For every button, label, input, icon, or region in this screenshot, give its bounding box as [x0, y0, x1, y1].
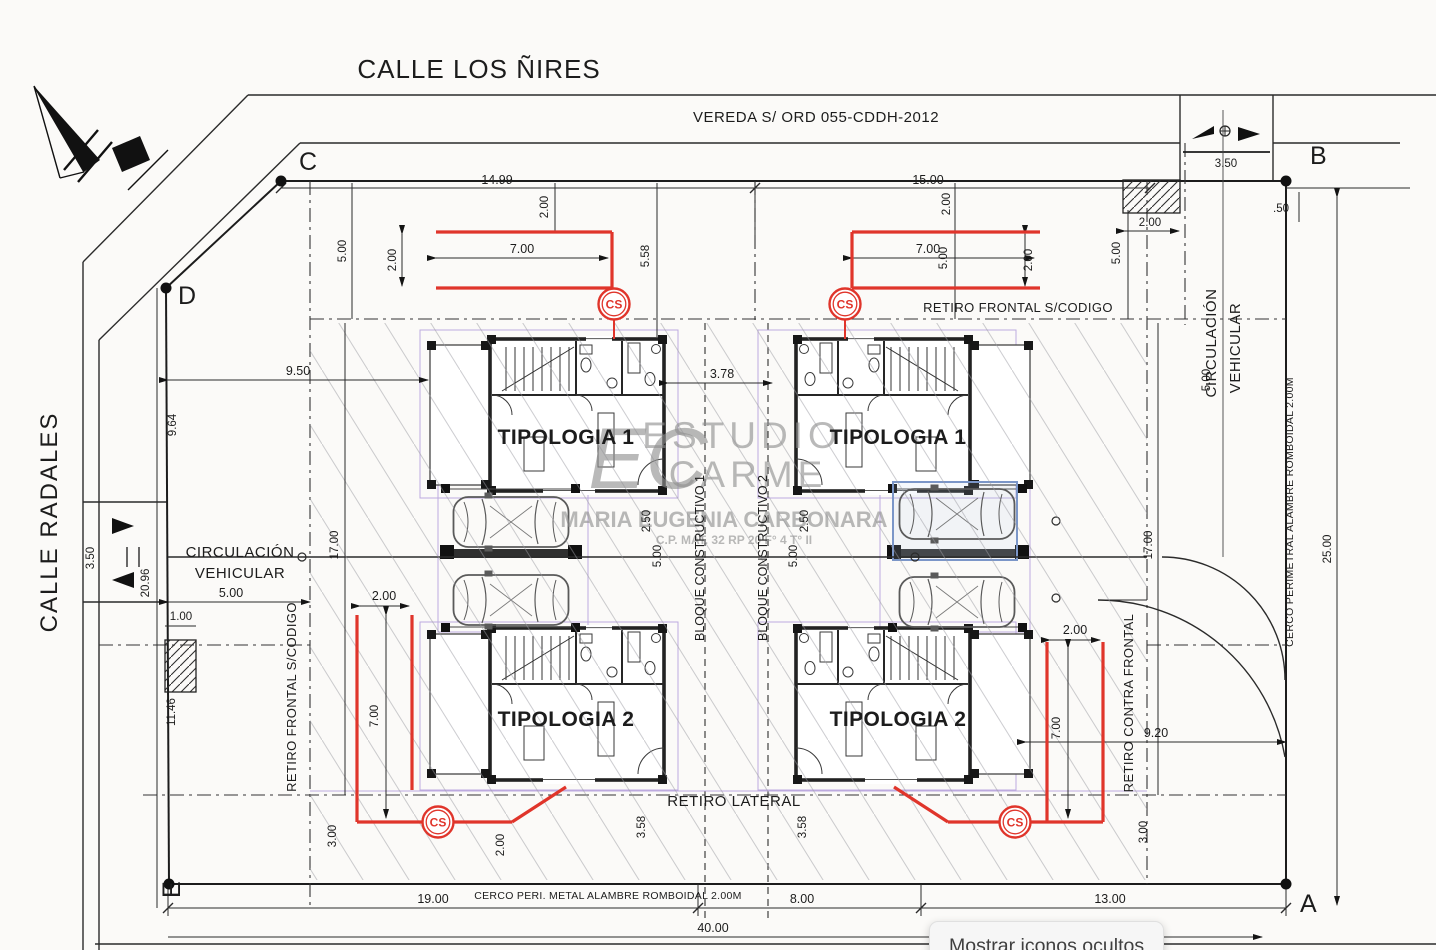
dim-9-64: 9.64 — [167, 413, 179, 436]
dim-deck-br-length: 7.00 — [1051, 717, 1063, 739]
dim-circ-5-right: 5.00 — [1201, 369, 1213, 391]
dim-front-5-58: 5.58 — [640, 245, 652, 267]
dim-front-gap-right: 2.00 — [941, 193, 953, 215]
watermark-architect-name: MARIA EUGENIA CARBONARA — [560, 507, 887, 532]
dim-deck-tr-width: 2.00 — [1023, 249, 1035, 271]
dim-drive-width: 5.00 — [219, 586, 243, 600]
dim-front-5-right: 5.00 — [938, 247, 950, 269]
site-plan-drawing: CS CS CS CS EC ESTUDIO CARME MARIA EUGEN… — [0, 0, 1436, 950]
taskbar-tooltip-label: Mostrar iconos ocultos — [949, 935, 1144, 950]
dim-carport-500-left: 5.00 — [652, 545, 664, 567]
corner-d-label: D — [178, 282, 196, 310]
street-name-left: CALLE RADALES — [36, 412, 63, 633]
dim-deck-br-width: 2.00 — [1063, 623, 1087, 637]
bloque-1-label: BLOQUE CONSTRUCTIVO 1 — [693, 475, 707, 641]
tipologia1-right-label: TIPOLOGIA 1 — [830, 426, 967, 449]
corner-e-label: E — [158, 881, 186, 898]
dim-lot-right-width: 15.00 — [912, 173, 943, 187]
dim-9-20: 9.20 — [1144, 726, 1168, 740]
dim-carport-500-right: 5.00 — [788, 545, 800, 567]
corner-b-label: B — [1310, 142, 1327, 170]
cs-marker-bottom-left: CS — [423, 807, 454, 838]
retiro-frontal-right-note: RETIRO FRONTAL S/CODIGO — [923, 300, 1113, 315]
cs-label: CS — [1007, 816, 1024, 830]
dim-11-46: 11.46 — [166, 698, 178, 726]
dim-front-5-left: 5.00 — [337, 240, 349, 262]
retiro-lateral-note: RETIRO LATERAL — [667, 793, 800, 810]
dim-hatch-side: 5.00 — [1111, 242, 1123, 264]
tipologia2-left-label: TIPOLOGIA 2 — [498, 708, 635, 731]
dim-bottom-seg3: 13.00 — [1094, 892, 1125, 906]
dim-25-00: 25.00 — [1322, 535, 1334, 564]
cs-label: CS — [606, 298, 623, 312]
vereda-note: VEREDA S/ ORD 055-CDDH-2012 — [693, 109, 939, 126]
tipologia1-left-label: TIPOLOGIA 1 — [498, 426, 635, 449]
access-hatch-left — [165, 640, 196, 692]
dim-deck-tl-width: 2.00 — [387, 249, 399, 271]
dim-deck-tl-length: 7.00 — [510, 242, 534, 256]
dim-17-left: 17.00 — [329, 531, 341, 560]
dim-2-00-rear: 2.00 — [495, 834, 507, 856]
circulacion-right-line2: VEHICULAR — [1227, 303, 1244, 393]
dim-vereda-access: 3.50 — [1215, 158, 1237, 170]
dim-hatch-width: 2.00 — [1139, 217, 1161, 229]
dim-3-00-left: 3.00 — [327, 825, 339, 847]
dim-radales-access: 3.50 — [85, 547, 97, 569]
cs-marker-top-left: CS — [599, 289, 630, 320]
access-hatch-top-right — [1123, 180, 1180, 213]
site-plan-page: CS CS CS CS EC ESTUDIO CARME MARIA EUGEN… — [0, 0, 1436, 950]
dim-bottom-seg1: 19.00 — [417, 892, 448, 906]
corner-a-label: A — [1300, 890, 1317, 918]
dim-front-gap-left: 2.00 — [539, 196, 551, 218]
dim-lot-left-width: 14.99 — [481, 173, 512, 187]
circulacion-left-line2: VEHICULAR — [195, 565, 285, 582]
dim-bottom-seg2: 8.00 — [790, 892, 814, 906]
retiro-contra-frontal-note: RETIRO CONTRA FRONTAL — [1121, 614, 1136, 793]
dim-bottom-total: 40.00 — [697, 921, 728, 935]
taskbar-tooltip: Mostrar iconos ocultos — [929, 921, 1164, 950]
cerco-right-note: CERCO PERIMETRAL ALAMBRE ROMBOIDAL 2.00M — [1284, 377, 1296, 647]
dim-3-58-left: 3.58 — [636, 816, 648, 838]
corner-c-label: C — [299, 148, 317, 176]
cs-marker-top-right: CS — [830, 289, 861, 320]
dim-3-58-right: 3.58 — [797, 816, 809, 838]
dim-deck-bl-width: 2.00 — [372, 589, 396, 603]
cs-label: CS — [837, 298, 854, 312]
bloque-2-label: BLOQUE CONSTRUCTIVO 2 — [756, 475, 770, 641]
dim-17-right: 17.00 — [1143, 531, 1155, 560]
dim-1-00: 1.00 — [170, 611, 192, 623]
cs-marker-bottom-right: CS — [1000, 807, 1031, 838]
dim-carport-250-left: 2.50 — [641, 510, 653, 532]
watermark-studio-1: ESTUDIO — [642, 415, 841, 456]
dim-deck-tr-length: 7.00 — [916, 242, 940, 256]
dim-9-50: 9.50 — [286, 364, 310, 378]
dim-deck-bl-length: 7.00 — [369, 705, 381, 727]
tipologia2-right-label: TIPOLOGIA 2 — [830, 708, 967, 731]
retiro-frontal-left-note: RETIRO FRONTAL S/CODIGO — [284, 602, 299, 792]
circulacion-left-line1: CIRCULACIÓN — [186, 544, 295, 561]
dim-20-96: 20.96 — [140, 569, 152, 598]
dim-block-gap: 3.78 — [710, 367, 734, 381]
dim-3-00-right: 3.00 — [1138, 821, 1150, 843]
dim-carport-250-right: 2.50 — [799, 510, 811, 532]
cs-label: CS — [430, 816, 447, 830]
cerco-bottom-note: CERCO PERI. METAL ALAMBRE ROMBOIDAL 2.00… — [474, 890, 741, 902]
dim-b-offset: .50 — [1273, 203, 1289, 215]
street-name-top: CALLE LOS ÑIRES — [357, 54, 600, 84]
